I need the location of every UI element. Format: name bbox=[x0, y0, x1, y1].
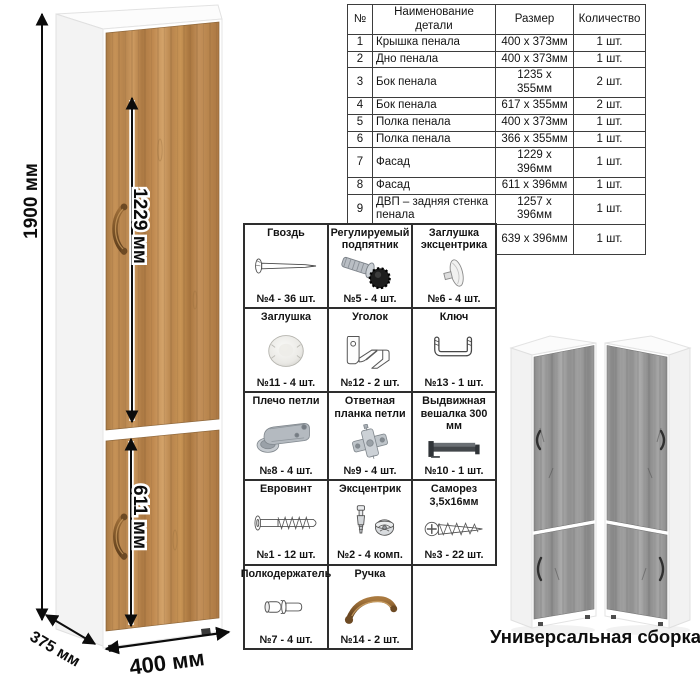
gray-upper-door bbox=[534, 346, 594, 532]
col-header-size: Размер bbox=[496, 5, 574, 35]
table-row: 7Фасад1229 х 396мм1 шт. bbox=[348, 148, 646, 178]
hardware-item-confirmat-screw: Евровинт №1 - 12 шт. bbox=[244, 480, 328, 564]
col-header-qty: Количество bbox=[574, 5, 646, 35]
hardware-item-hex-key: Ключ №13 - 1 шт. bbox=[412, 308, 496, 392]
hardware-item-cam-lock: Эксцентрик bbox=[328, 480, 412, 564]
self-tapping-screw-icon bbox=[420, 508, 488, 551]
table-row: 5Полка пенала400 х 373мм1 шт. bbox=[348, 114, 646, 131]
table-row: 8Фасад611 х 396мм1 шт. bbox=[348, 178, 646, 195]
empty-cell bbox=[412, 565, 496, 649]
cabinet-side-panel bbox=[56, 14, 103, 646]
hardware-item-hinge-arm: Плечо петли №8 - 4 шт. bbox=[244, 392, 328, 480]
gray-cabinet bbox=[511, 336, 596, 635]
hinge-plate-icon bbox=[338, 420, 402, 467]
universal-assembly-caption: Универсальная сборка. bbox=[490, 626, 700, 648]
table-row: 9ДВП – задняя стенка пенала1257 х 396мм1… bbox=[348, 194, 646, 224]
hardware-grid: Гвоздь №4 - 36 шт. Регулируемый подпятни… bbox=[243, 223, 497, 650]
plug-cap-icon bbox=[254, 323, 318, 378]
hardware-item-plug-cap: Заглушка №11 - 4 шт. bbox=[244, 308, 328, 392]
hardware-item-shelf-pin: Полкодержатель №7 - 4 шт. bbox=[244, 565, 328, 649]
col-header-num: № bbox=[348, 5, 373, 35]
hardware-item-self-tapping-screw: Саморез 3,5х16мм №3 - 22 шт. bbox=[412, 480, 496, 564]
cabinet-drawing: 1900 мм 1229 мм 611 мм 375 мм 400 мм bbox=[0, 0, 245, 683]
universal-assembly-illustration bbox=[495, 328, 700, 638]
cabinet-body bbox=[56, 5, 222, 652]
pullout-hanger-icon bbox=[419, 432, 489, 466]
handle-icon bbox=[335, 580, 405, 635]
table-row: 2Дно пенала400 х 373мм1 шт. bbox=[348, 51, 646, 68]
assembly-sheet: 1900 мм 1229 мм 611 мм 375 мм 400 мм № bbox=[0, 0, 700, 683]
hardware-item-hinge-plate: Ответная планка петли №9 - 4 шт. bbox=[328, 392, 412, 480]
confirmat-screw-icon bbox=[250, 496, 322, 551]
lower-door-dimension-label: 611 мм bbox=[129, 485, 150, 549]
gray-cabinet-mirrored bbox=[605, 336, 690, 635]
shelf-pin-icon bbox=[254, 580, 318, 635]
col-header-name: Наименование детали bbox=[373, 5, 496, 35]
dim-height-1900: 1900 мм bbox=[21, 14, 42, 620]
hardware-item-nail: Гвоздь №4 - 36 шт. bbox=[244, 224, 328, 308]
lower-door bbox=[106, 430, 219, 631]
hardware-item-handle: Ручка №14 - 2 шт. bbox=[328, 565, 412, 649]
hardware-item-corner-bracket: Уголок №12 - 2 шт. bbox=[328, 308, 412, 392]
upper-door bbox=[106, 22, 219, 430]
cam-lock-icon bbox=[337, 496, 403, 551]
height-dimension-label: 1900 мм bbox=[21, 163, 42, 239]
table-row: 1Крышка пенала400 х 373мм1 шт. bbox=[348, 35, 646, 52]
table-row: 6Полка пенала366 х 355мм1 шт. bbox=[348, 131, 646, 148]
corner-bracket-icon bbox=[337, 323, 403, 378]
nail-icon bbox=[250, 239, 322, 294]
width-dimension-label: 400 мм bbox=[128, 645, 206, 680]
hinge-arm-icon bbox=[251, 408, 321, 467]
parts-table: № Наименование детали Размер Количество … bbox=[347, 4, 646, 255]
table-row: 3Бок пенала1235 х 355мм2 шт. bbox=[348, 68, 646, 98]
upper-door-dimension-label: 1229 мм bbox=[129, 188, 150, 264]
table-row: 4Бок пенала617 х 355мм2 шт. bbox=[348, 98, 646, 115]
cam-cover-icon bbox=[424, 251, 484, 294]
hex-key-icon bbox=[421, 323, 487, 378]
hardware-item-pullout-hanger: Выдвижная вешалка 300 мм №10 - 1 шт. bbox=[412, 392, 496, 480]
adjustable-foot-icon bbox=[334, 251, 406, 294]
parts-table-header: № Наименование детали Размер Количество bbox=[348, 5, 646, 35]
hardware-item-adjustable-foot: Регулируемый подпятник №5 - 4 шт. bbox=[328, 224, 412, 308]
gray-lower-door bbox=[534, 524, 594, 619]
hardware-item-cam-cover: Заглушка эксцентрика №6 - 4 шт. bbox=[412, 224, 496, 308]
